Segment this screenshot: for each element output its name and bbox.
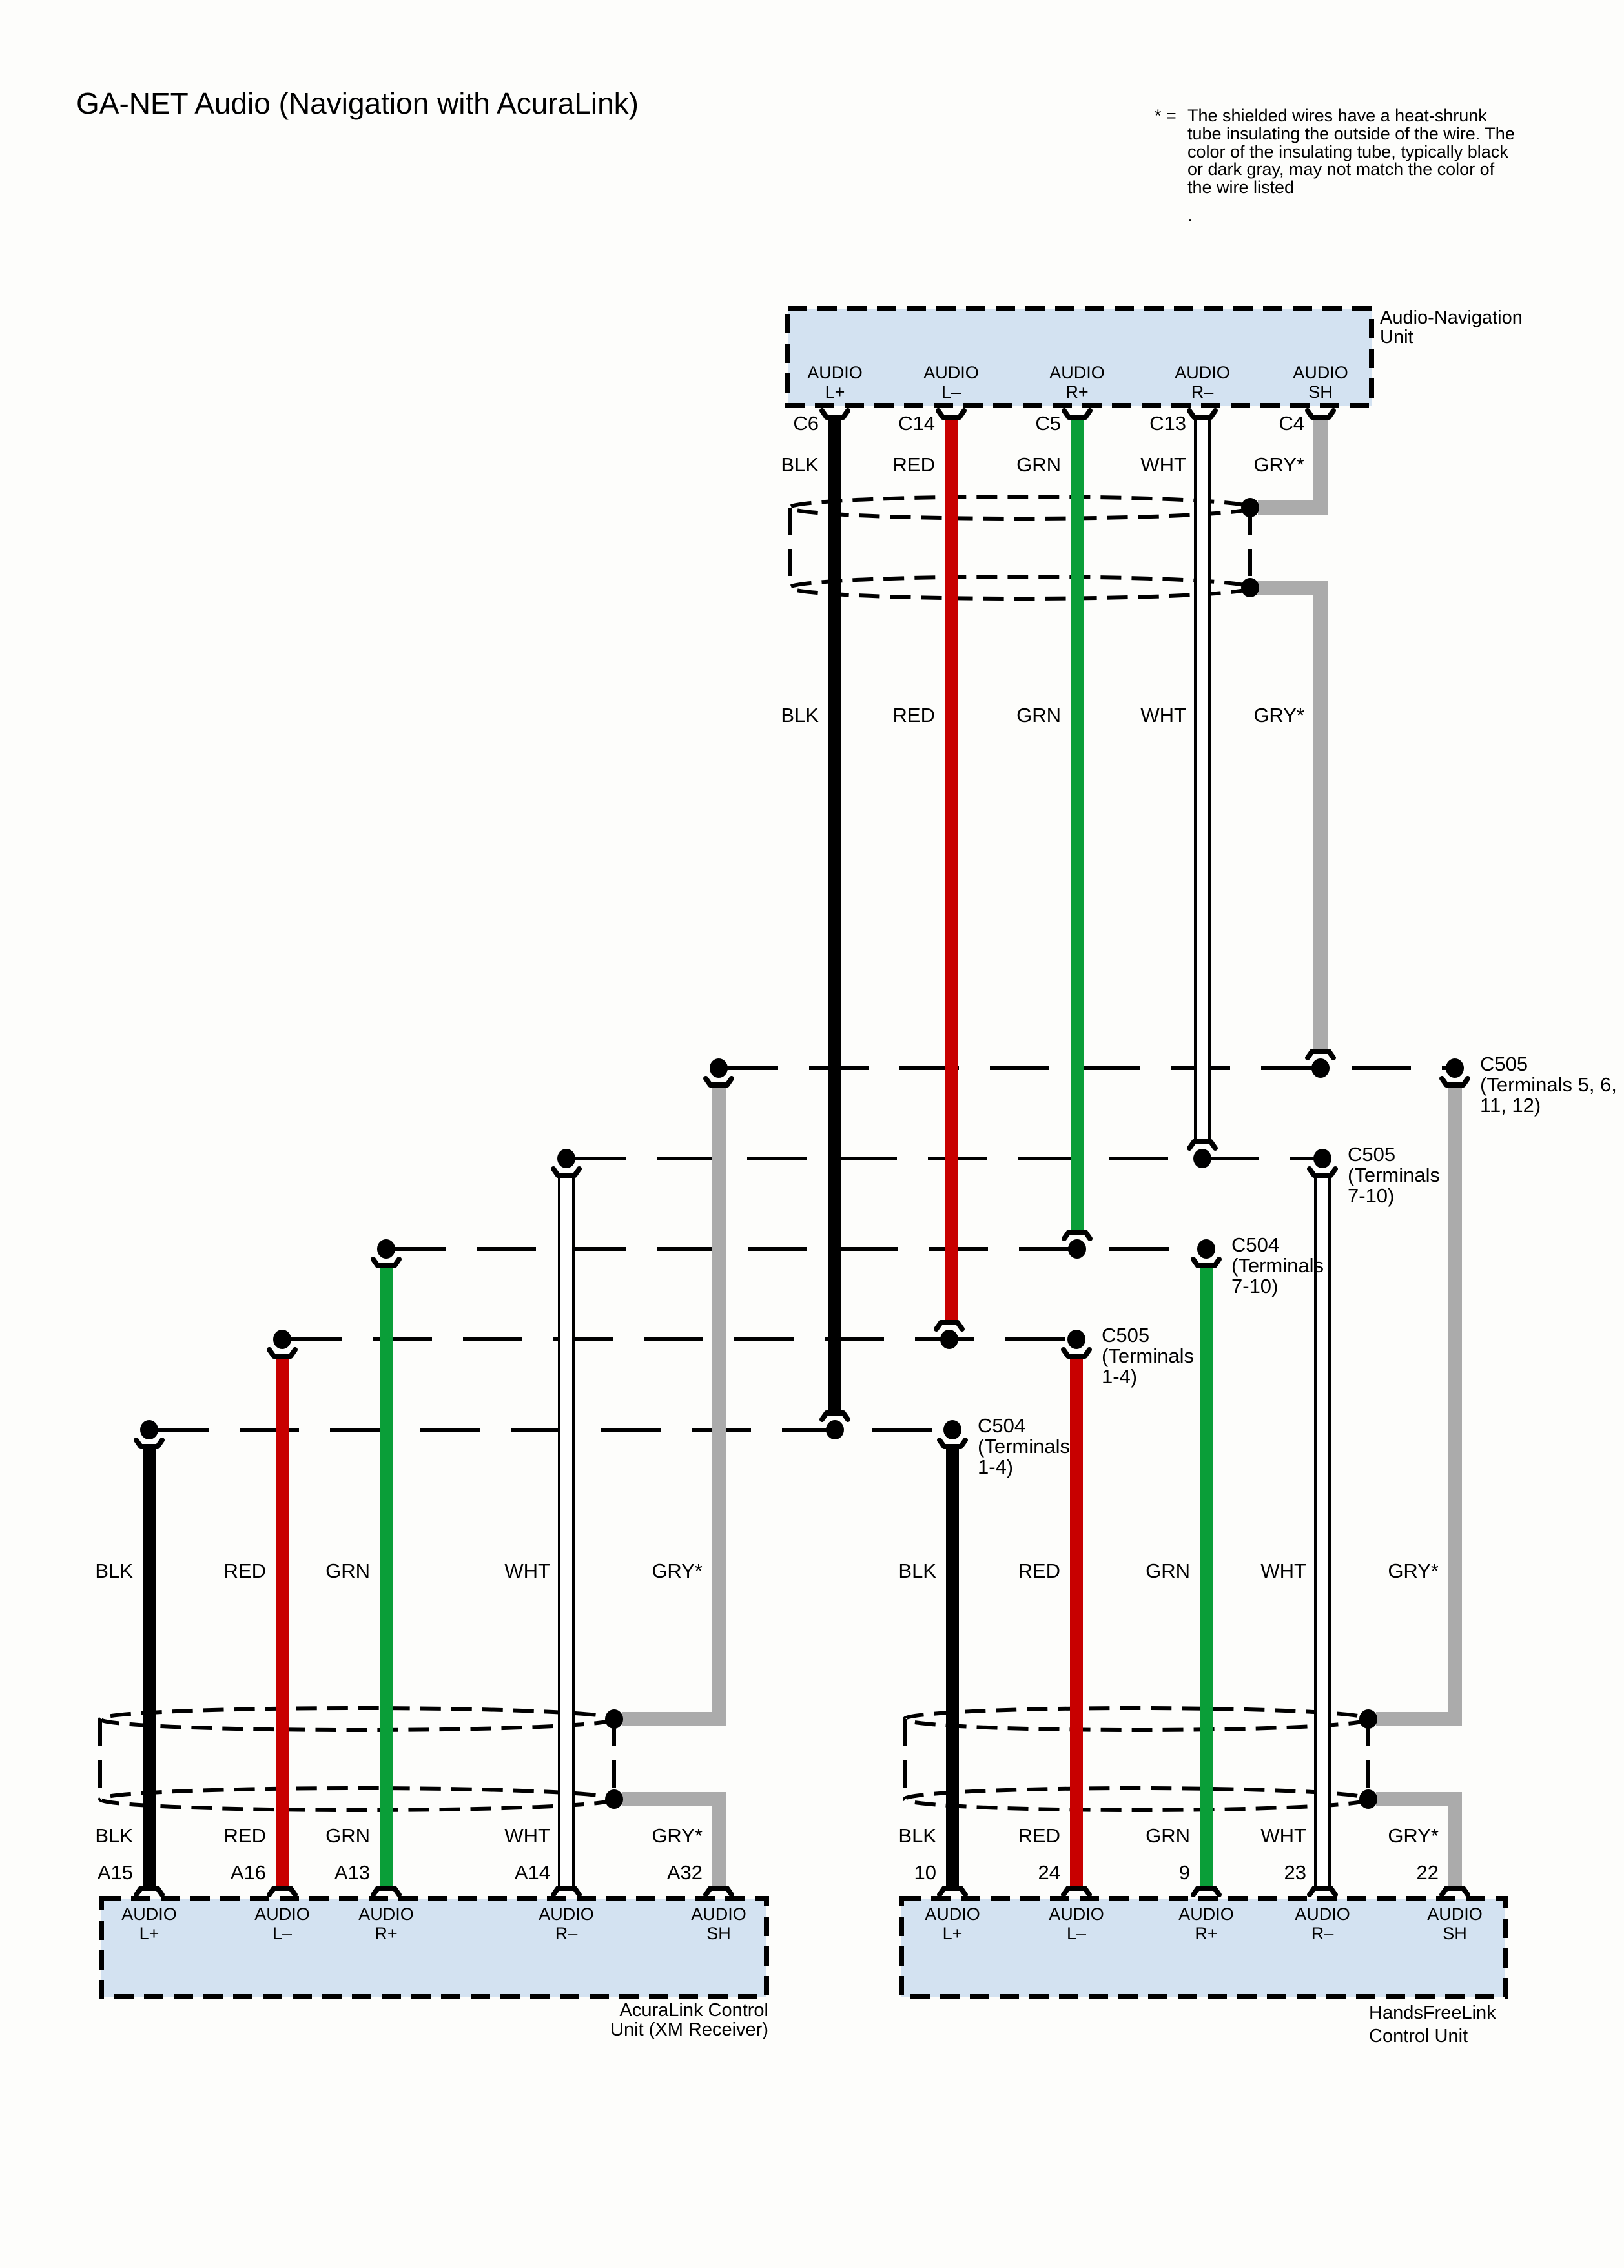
connector-fork-icon [940, 1888, 965, 1895]
junction-dot [943, 1420, 961, 1439]
connector-fork-icon [1064, 1350, 1089, 1356]
connector-fork-icon [938, 411, 964, 417]
shield-dot [605, 1789, 623, 1809]
wire-color-label: GRN [1016, 705, 1061, 727]
wire-color-label: GRN [1016, 455, 1061, 476]
wire-color-label: WHT [1260, 1561, 1306, 1582]
pin-label: AUDIO [807, 364, 863, 382]
junction-label-line: (Terminals [1231, 1255, 1324, 1276]
shield-ring [905, 1708, 1368, 1730]
note-prefix: * = [1155, 107, 1177, 125]
pin-label: AUDIO [358, 1905, 414, 1924]
wire-color-label: WHT [504, 1826, 550, 1847]
wire-red-right [1070, 1356, 1083, 1888]
wire-grn-right [1200, 1266, 1213, 1888]
wire-color-label: BLK [781, 705, 819, 727]
acuralink-unit-box [101, 1899, 766, 1997]
wire-color-label: BLK [95, 1561, 133, 1582]
dots [140, 498, 1464, 1809]
junction-dot [1311, 1058, 1330, 1078]
pin-label: AUDIO [923, 364, 979, 382]
junction-label-line: C504 [1231, 1235, 1324, 1255]
pin-label: SH [706, 1924, 731, 1943]
pin-label: L– [1067, 1924, 1086, 1943]
wire-color-label: GRN [325, 1561, 370, 1582]
junction-label-line: C505 [1348, 1144, 1440, 1165]
terminal-label: A15 [98, 1862, 133, 1884]
pin-label: R+ [375, 1924, 397, 1943]
wire-wht-top [1195, 418, 1209, 1142]
junction-dot [273, 1330, 291, 1349]
pin-label: SH [1443, 1924, 1467, 1943]
wire-color-label: GRY* [1388, 1561, 1439, 1582]
junction-dot [826, 1420, 844, 1439]
wire-color-label: RED [893, 455, 935, 476]
wire-color-label: GRY* [1388, 1826, 1439, 1847]
wire-color-label: GRY* [1253, 705, 1304, 727]
nav-unit-caption: Audio-Navigation [1380, 308, 1523, 327]
wire-color-label: WHT [1260, 1826, 1306, 1847]
pin-label: L+ [139, 1924, 159, 1943]
acuralink-unit-caption: Unit (XM Receiver) [610, 2020, 768, 2039]
pin-label: AUDIO [1427, 1905, 1483, 1924]
junction-label-line: C504 [978, 1416, 1070, 1436]
shield-ring [100, 1788, 614, 1810]
junction-dot [1067, 1330, 1085, 1349]
wire-red-top [945, 418, 958, 1323]
junction-label: C504 (Terminals 1-4) [978, 1416, 1070, 1478]
connector-fork-icon [373, 1259, 399, 1266]
connector-fork-icon [1308, 411, 1333, 417]
pin-label: R+ [1195, 1924, 1217, 1943]
junction-dot [1446, 1058, 1464, 1078]
note-line: color of the insulating tube, typically … [1187, 143, 1508, 161]
terminal-label: A13 [334, 1862, 370, 1884]
junction-label: C505 (Terminals 5, 6, 11, 12) [1480, 1054, 1617, 1116]
pin-label: R– [1311, 1924, 1334, 1943]
pin-label: AUDIO [121, 1905, 177, 1924]
pin-label: AUDIO [925, 1905, 980, 1924]
shield-ring [790, 577, 1251, 599]
pin-label: AUDIO [254, 1905, 310, 1924]
page-title: GA-NET Audio (Navigation with AcuraLink) [76, 88, 639, 119]
connector-fork-icon [822, 411, 848, 417]
wire-gry-left-upper [622, 1085, 719, 1719]
wire-color-label: GRY* [652, 1561, 703, 1582]
shield-left [100, 1708, 614, 1810]
pin-label: AUDIO [1175, 364, 1230, 382]
junction-label-line: (Terminals 5, 6, [1480, 1075, 1617, 1095]
junction-dot [710, 1058, 728, 1078]
shield-ring [100, 1708, 614, 1730]
pin-label: L+ [825, 383, 845, 402]
shield-top [790, 497, 1251, 599]
note-line: The shielded wires have a heat-shrunk [1187, 107, 1487, 125]
shield-dot [1359, 1709, 1377, 1729]
wire-blk-left [143, 1447, 156, 1888]
wire-color-label: GRN [325, 1826, 370, 1847]
connector-fork-icon [269, 1350, 295, 1356]
pin-label: AUDIO [1295, 1905, 1350, 1924]
wire-color-label: BLK [898, 1561, 936, 1582]
connector-label: C4 [1279, 413, 1304, 435]
connector-fork-icon [940, 1440, 965, 1447]
connector-fork-icon [1310, 1888, 1335, 1895]
shield-ring [905, 1788, 1368, 1810]
wire-color-label: GRN [1146, 1561, 1190, 1582]
pin-label: AUDIO [539, 1905, 594, 1924]
junction-label-line: 7-10) [1348, 1186, 1440, 1206]
pin-label: AUDIO [691, 1905, 746, 1924]
junction-dot [1313, 1149, 1331, 1168]
pin-label: L– [941, 383, 961, 402]
connector-fork-icon [1189, 411, 1215, 417]
connector-label: C5 [1035, 413, 1061, 435]
pin-label: R– [1191, 383, 1214, 402]
note-line: . [1187, 206, 1193, 225]
pin-label: SH [1308, 383, 1333, 402]
connector-fork-icon [1064, 1232, 1090, 1239]
connector-fork-icon [136, 1888, 162, 1895]
shield-right [905, 1708, 1368, 1810]
pin-label: AUDIO [1178, 1905, 1234, 1924]
connector-fork-icon [1308, 1051, 1333, 1058]
wire-blk-top [828, 418, 841, 1413]
connector-fork-icon [269, 1888, 295, 1895]
connector-label: C14 [898, 413, 935, 435]
pin-label: L– [272, 1924, 292, 1943]
terminal-label: A32 [667, 1862, 703, 1884]
junction-label-line: (Terminals [1102, 1346, 1194, 1366]
junction-dot [1197, 1239, 1215, 1259]
junction-label: C504 (Terminals 7-10) [1231, 1235, 1324, 1297]
connector-fork-icon [373, 1888, 399, 1895]
connector-fork-icon [1189, 1142, 1215, 1148]
note-line: tube insulating the outside of the wire.… [1187, 125, 1515, 143]
junction-label-line: C505 [1480, 1054, 1617, 1075]
terminal-label: 22 [1417, 1862, 1439, 1884]
wire-wht-left [559, 1175, 573, 1888]
junction-label-line: (Terminals [1348, 1165, 1440, 1186]
wires [143, 418, 1455, 1888]
wire-color-label: GRN [1146, 1826, 1190, 1847]
wire-red-left [276, 1356, 289, 1888]
junction-label-line: (Terminals [978, 1436, 1070, 1457]
terminal-label: A16 [231, 1862, 266, 1884]
wire-grn-top [1071, 418, 1084, 1232]
note-line: or dark gray, may not match the color of [1187, 160, 1494, 179]
connector-label: C6 [793, 413, 819, 435]
connector-fork-icon [1064, 411, 1090, 417]
wire-color-label: GRY* [1253, 455, 1304, 476]
terminal-label: A14 [515, 1862, 550, 1884]
junction-dot [1068, 1239, 1086, 1259]
wire-gry-top-lower [1255, 588, 1321, 1050]
junction-label: C505 (Terminals 7-10) [1348, 1144, 1440, 1206]
handsfreelink-unit-caption: Control Unit [1369, 2026, 1468, 2046]
connector-fork-icon [936, 1323, 962, 1329]
wire-color-label: RED [893, 705, 935, 727]
terminal-label: 10 [914, 1862, 936, 1884]
junction-label-line: C505 [1102, 1325, 1194, 1346]
acuralink-unit-caption: AcuraLink Control [620, 2001, 769, 2020]
pin-label: AUDIO [1049, 364, 1105, 382]
nav-unit-caption: Unit [1380, 327, 1413, 347]
wire-color-label: RED [224, 1561, 266, 1582]
connector-fork-icon [553, 1888, 579, 1895]
junction-label-line: 1-4) [1102, 1366, 1194, 1387]
wire-color-label: RED [1018, 1561, 1060, 1582]
connector-fork-icon [706, 1078, 732, 1085]
wire-color-label: WHT [504, 1561, 550, 1582]
connector-fork-icon [706, 1888, 732, 1895]
shield-dot [1359, 1789, 1377, 1809]
connector-fork-icon [1442, 1888, 1468, 1895]
junction-label-line: 11, 12) [1480, 1095, 1617, 1116]
wire-color-label: RED [1018, 1826, 1060, 1847]
wire-color-label: GRY* [652, 1826, 703, 1847]
note-line: the wire listed [1187, 178, 1294, 197]
connector-fork-icon [1442, 1078, 1468, 1085]
connector-fork-icon [1064, 1888, 1089, 1895]
wire-color-label: RED [224, 1826, 266, 1847]
shield-dot [1241, 578, 1259, 597]
junction-dot [940, 1330, 958, 1349]
connector-fork-icon [822, 1413, 848, 1419]
wire-grn-left [380, 1266, 393, 1888]
wire-color-label: BLK [781, 455, 819, 476]
connector-label: C13 [1149, 413, 1186, 435]
connector-fork-icon [1310, 1169, 1335, 1175]
connector-fork-icon [1193, 1259, 1219, 1266]
pin-label: L+ [943, 1924, 963, 1943]
junction-dot [557, 1149, 575, 1168]
pin-label: R+ [1065, 383, 1088, 402]
connector-fork-icon [1193, 1888, 1219, 1895]
handsfreelink-unit-caption: HandsFreeLink [1369, 2003, 1496, 2023]
pin-label: AUDIO [1293, 364, 1348, 382]
connector-forks [136, 411, 1468, 1895]
wire-blk-right [946, 1447, 959, 1888]
junction-dot [1193, 1149, 1211, 1168]
connector-fork-icon [136, 1440, 162, 1447]
pin-label: R– [555, 1924, 578, 1943]
wiring-diagram-canvas: GA-NET Audio (Navigation with AcuraLink)… [0, 0, 1624, 2268]
terminal-label: 23 [1284, 1862, 1306, 1884]
pin-label: AUDIO [1049, 1905, 1104, 1924]
shield-ring [790, 497, 1251, 519]
wire-color-label: WHT [1140, 455, 1186, 476]
shield-dot [605, 1709, 623, 1729]
wire-color-label: WHT [1140, 705, 1186, 727]
connector-fork-icon [553, 1169, 579, 1175]
junction-label-line: 1-4) [978, 1457, 1070, 1478]
terminal-label: 9 [1179, 1862, 1190, 1884]
junction-label-line: 7-10) [1231, 1276, 1324, 1297]
junction-dot [377, 1239, 395, 1259]
terminal-label: 24 [1038, 1862, 1060, 1884]
wire-color-label: BLK [95, 1826, 133, 1847]
junction-dot [140, 1420, 158, 1439]
shield-dot [1241, 498, 1259, 517]
junction-label: C505 (Terminals 1-4) [1102, 1325, 1194, 1387]
wire-color-label: BLK [898, 1826, 936, 1847]
